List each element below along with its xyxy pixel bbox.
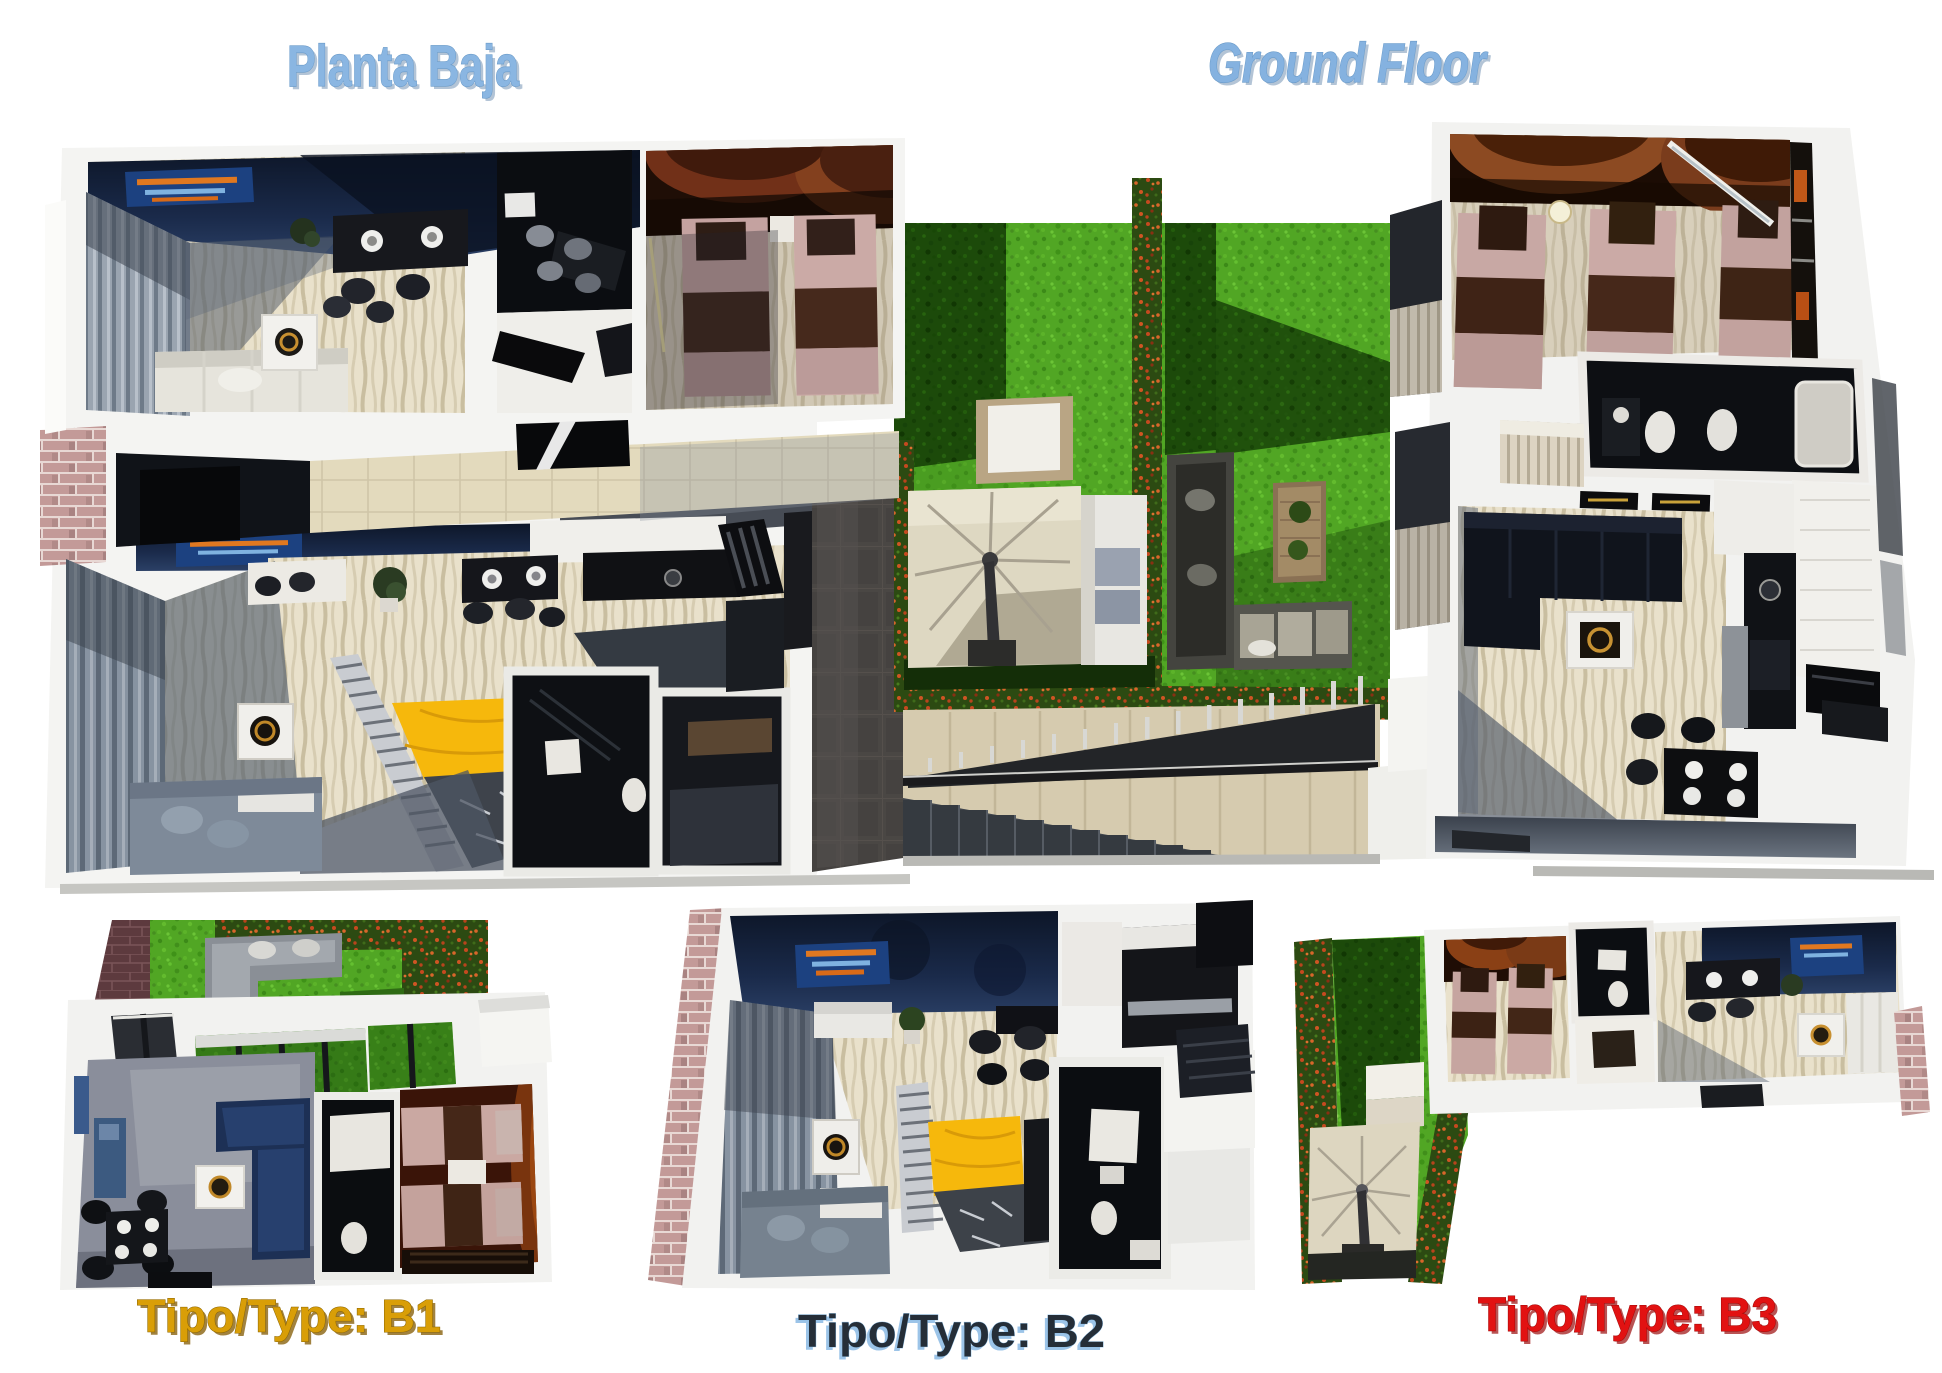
svg-text:Ground Floor: Ground Floor	[1208, 31, 1488, 94]
svg-text:Planta Baja: Planta Baja	[287, 34, 520, 99]
svg-text:Tipo/Type: B2: Tipo/Type: B2	[798, 1305, 1105, 1357]
svg-text:Tipo/Type: B3: Tipo/Type: B3	[1478, 1289, 1777, 1342]
svg-text:Tipo/Type: B1: Tipo/Type: B1	[137, 1290, 441, 1342]
